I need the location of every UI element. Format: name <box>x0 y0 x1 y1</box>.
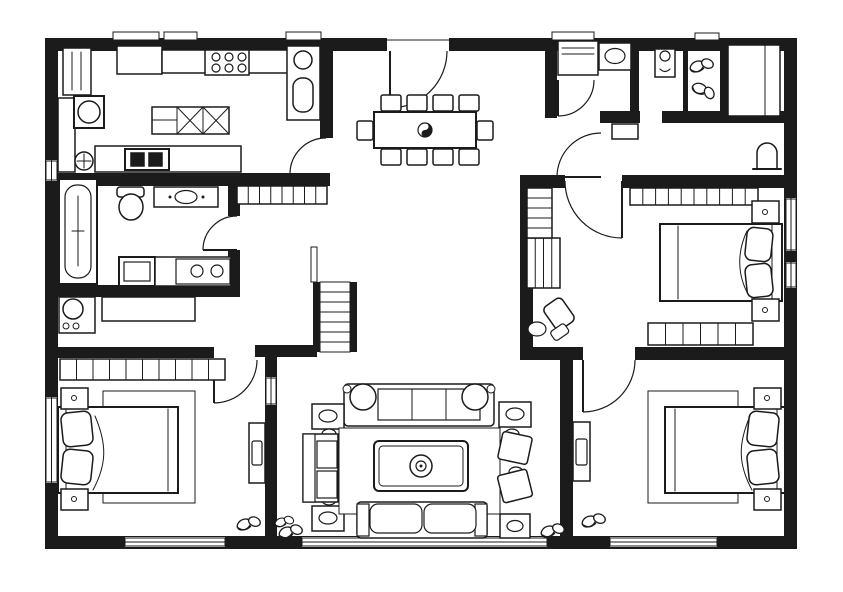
bathroom-counter-basin <box>211 265 223 277</box>
living-sofa-corner-knob <box>343 385 351 393</box>
kitchen-pantry <box>63 48 91 95</box>
stairs-side-right <box>350 282 357 352</box>
living-settee-back <box>303 434 315 502</box>
living-loveseat-arm <box>475 504 487 536</box>
vanity-knob <box>202 196 205 199</box>
kitchen-counter-left <box>58 98 75 172</box>
kitchen-dining-wall <box>320 38 333 138</box>
kitchen-sink-basin <box>78 101 100 123</box>
window-sill-laundry <box>552 32 594 40</box>
nightstand-knob <box>763 308 768 313</box>
stairs-railing <box>311 247 317 282</box>
dining-chair <box>407 95 427 111</box>
bedroom-br-pillow <box>746 449 779 486</box>
kitchen-cooktop-plate <box>149 153 162 166</box>
coffee-table-decor-dot <box>420 465 423 468</box>
bath2-divider-right <box>720 51 728 111</box>
utility-table <box>102 297 195 321</box>
living-settee-cushion <box>317 441 337 468</box>
kitchen-upper-cabinet <box>117 46 162 74</box>
dining-chair <box>459 149 479 165</box>
floorplan-svg <box>0 0 843 592</box>
living-sofa-corner-knob <box>487 385 495 393</box>
nightstand-knob <box>765 497 770 502</box>
nightstand-knob <box>765 396 770 401</box>
dining-chair <box>381 95 401 111</box>
living-side-table-decor <box>507 521 523 532</box>
window-sill-kitchen-1 <box>113 32 159 40</box>
stove-burner <box>212 53 220 61</box>
stairs-side-left <box>313 282 320 352</box>
bath2-plant <box>688 76 719 106</box>
hallway-cabinet <box>612 124 638 139</box>
living-loveseat-arm <box>357 504 369 536</box>
living-settee-cushion <box>317 471 337 498</box>
bedroom-br-desk-inner <box>576 439 587 465</box>
bath2-toilet-bowl <box>660 51 670 61</box>
dining-chair-end <box>357 121 373 140</box>
bathroom-counter-basin <box>191 265 203 277</box>
bedroom-br-pillow <box>746 411 779 448</box>
nightstand-knob <box>72 396 77 401</box>
stairs-base-wall <box>255 345 317 357</box>
living-loveseat-cushion <box>424 504 476 533</box>
dining-laundry-wall <box>545 38 557 118</box>
hallway-door-swing-arc <box>557 133 601 177</box>
utility-bedroom-bl-wall <box>58 347 214 358</box>
bedroom-mr-top-wall-right <box>622 175 784 188</box>
utility-stove-knob <box>63 323 69 329</box>
bedroom-bl-pillow <box>60 411 93 448</box>
outer-wall-top-left <box>45 38 387 51</box>
nightstand-knob <box>72 497 77 502</box>
room-central-hall <box>240 186 520 347</box>
bath2-divider-left <box>683 51 688 111</box>
bath2-plant <box>688 57 714 74</box>
living-side-table-decor <box>506 408 524 420</box>
living-accent-chair <box>497 431 532 465</box>
bedroom-bl-plant <box>235 515 261 532</box>
kitchen-hall-wall <box>58 173 330 186</box>
dining-chair <box>407 149 427 165</box>
bedroom-mr-shelf <box>527 188 552 238</box>
toilet-bowl <box>119 194 143 220</box>
bathroom-washer-inner <box>124 262 150 281</box>
nightstand-knob <box>763 210 768 215</box>
laundry-basin-bowl <box>605 49 625 64</box>
window-sill-kitchen-2 <box>164 32 197 40</box>
hallway-top-wall-left <box>600 111 640 123</box>
living-bedroom-br-wall <box>560 360 573 536</box>
window-sill-kitchen-3 <box>286 32 321 40</box>
window-sill-bath2 <box>695 33 719 40</box>
kitchen-door-swing-arc <box>290 138 326 174</box>
bedroom-bl-dresser-inner <box>252 441 262 465</box>
dining-chair <box>433 95 453 111</box>
laundry-washer <box>558 41 598 75</box>
living-accent-chair <box>497 469 533 503</box>
stove-burner <box>238 53 246 61</box>
dining-chair <box>381 149 401 165</box>
living-side-table-decor <box>319 512 337 524</box>
bedroom-mr-side-table <box>528 322 546 336</box>
bedroom-mr-pillow <box>744 263 773 299</box>
bedroom-mr-pillow <box>744 227 773 263</box>
floorplan-page <box>0 0 843 592</box>
utility-stove-burner <box>63 299 83 319</box>
room-hallway <box>557 123 784 175</box>
bedroom-mr-bottom-wall-left <box>533 347 583 360</box>
utility-stove-knob <box>73 323 79 329</box>
kitchen-sink-right-basin <box>294 51 312 69</box>
dining-chair <box>433 149 453 165</box>
vanity-sink <box>175 191 197 204</box>
living-sofa-arm-pillow <box>350 384 376 410</box>
stove-burner <box>225 53 233 61</box>
hallway-toilet <box>757 143 777 169</box>
bath2-shower <box>728 45 780 116</box>
stove-burner <box>212 64 220 72</box>
dining-chair <box>459 95 479 111</box>
vanity-knob <box>169 196 172 199</box>
laundry-door-swing-arc <box>558 80 594 116</box>
kitchen-dish-rack <box>293 78 313 112</box>
stove-burner <box>238 64 246 72</box>
living-loveseat-cushion <box>370 504 422 533</box>
stove-burner <box>225 64 233 72</box>
kitchen-cooktop-plate <box>131 153 144 166</box>
dining-chair-end <box>477 121 493 140</box>
living-sofa-arm-pillow <box>462 384 488 410</box>
bathroom-door-swing-arc <box>203 216 237 250</box>
living-side-table-decor <box>319 410 337 422</box>
bedroom-mr-door-swing-arc <box>565 181 622 238</box>
bedroom-br-door-swing-arc <box>583 360 635 412</box>
bedroom-br-plant <box>580 512 606 529</box>
bedroom-bl-pillow <box>60 449 93 486</box>
bedroom-mr-bottom-wall-right <box>635 347 784 360</box>
